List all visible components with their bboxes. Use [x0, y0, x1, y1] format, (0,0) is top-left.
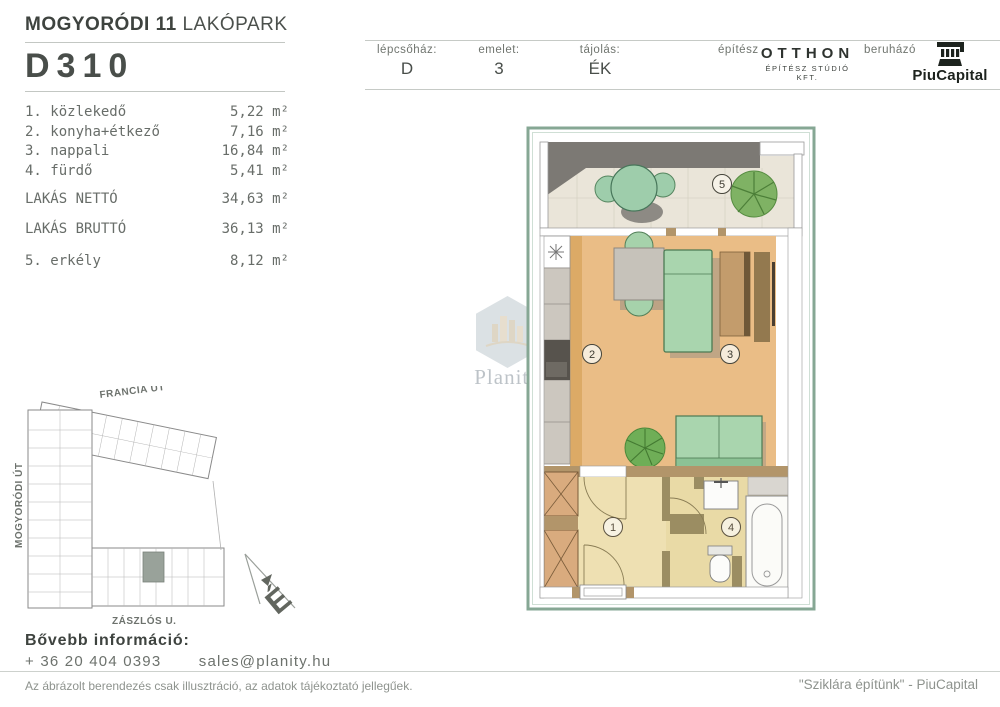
- net-area: 34,63 m²: [222, 190, 289, 210]
- svg-text:4: 4: [728, 522, 734, 534]
- room-label-3: 3: [721, 345, 740, 364]
- hall-bath-area: 1 4: [544, 472, 788, 594]
- wardrobe-icon: [720, 252, 775, 342]
- room-row: 1. közlekedő 5,22 m²: [25, 103, 289, 123]
- siteplan-left-wing: [28, 410, 92, 608]
- floor-cell: emelet: 3: [459, 44, 539, 79]
- balcony-railing: [760, 142, 804, 155]
- gross-area: 36,13 m²: [222, 220, 289, 240]
- room-label-2: 2: [583, 345, 602, 364]
- living-kitchen-area: 2 3: [542, 232, 776, 470]
- contact-email: sales@planity.hu: [199, 653, 332, 670]
- divider: [25, 91, 285, 92]
- bath-shelf: [748, 477, 788, 495]
- floorplan-drawing: 5: [526, 126, 816, 611]
- project-title-light: LAKÓPARK: [182, 14, 287, 35]
- orientation-cell: tájolás: ÉK: [560, 44, 640, 79]
- entry-door: [580, 585, 626, 599]
- svg-text:1: 1: [610, 522, 616, 534]
- piucapital-column-icon: [933, 41, 967, 67]
- footer-divider: [0, 671, 1000, 672]
- siteplan-bottom-wing: [92, 548, 224, 606]
- bed-icon: [664, 250, 720, 358]
- orientation-value: ÉK: [560, 59, 640, 79]
- north-letter: É: [258, 580, 297, 620]
- balcony-row: 5. erkély 8,12 m²: [25, 252, 289, 272]
- architect-subtitle: ÉPÍTÉSZ STÚDIÓ KFT.: [755, 64, 860, 82]
- siteplan-drawing: FRANCIA ÚT MOGYORÓDI ÚT ZÁSZLÓS U.: [12, 386, 240, 628]
- staircase-value: D: [367, 59, 447, 79]
- street-bottom-label: ZÁSZLÓS U.: [112, 614, 176, 627]
- shaft-icon: [544, 472, 578, 588]
- washbasin-icon: [704, 478, 738, 509]
- footer-disclaimer: Az ábrázolt berendezés csak illusztráció…: [25, 679, 413, 693]
- sofa-icon: [676, 416, 766, 470]
- architect-name: OTTHON: [755, 45, 860, 62]
- svg-text:3: 3: [727, 349, 733, 361]
- gross-area-row: LAKÁS BRUTTÓ 36,13 m²: [25, 220, 289, 240]
- contact-row: + 36 20 404 0393 sales@planity.hu: [25, 653, 331, 670]
- net-label: LAKÁS NETTÓ: [25, 190, 118, 210]
- room-label-5: 5: [713, 175, 732, 194]
- floor-value: 3: [459, 59, 539, 79]
- svg-text:2: 2: [589, 349, 595, 361]
- kitchen-counter-icon: [542, 236, 570, 464]
- room-area: 16,84 m²: [222, 142, 289, 162]
- staircase-label: lépcsőház:: [367, 44, 447, 56]
- street-left-label: MOGYORÓDI ÚT: [12, 463, 25, 548]
- highlighted-unit: [143, 552, 164, 582]
- room-row: 3. nappali 16,84 m²: [25, 142, 289, 162]
- floor-label: emelet:: [459, 44, 539, 56]
- datasheet-page: MOGYORÓDI 11 LAKÓPARK D310 lépcsőház: D …: [0, 0, 1000, 707]
- room-area-list: 1. közlekedő 5,22 m² 2. konyha+étkező 7,…: [25, 103, 289, 272]
- room-area: 5,22 m²: [230, 103, 289, 123]
- room-area: 5,41 m²: [230, 162, 289, 182]
- project-title: MOGYORÓDI 11 LAKÓPARK: [25, 14, 288, 36]
- developer-name: PiuCapital: [905, 67, 995, 84]
- room-row: 2. konyha+étkező 7,16 m²: [25, 123, 289, 143]
- street-top-label: FRANCIA ÚT: [99, 386, 166, 401]
- contact-heading: Bővebb információ:: [25, 632, 190, 650]
- svg-text:5: 5: [719, 179, 725, 191]
- bathtub-icon: [746, 496, 788, 594]
- room-label-1: 1: [604, 518, 623, 537]
- room-row: 4. fürdő 5,41 m²: [25, 162, 289, 182]
- room-label-4: 4: [722, 518, 741, 537]
- net-area-row: LAKÁS NETTÓ 34,63 m²: [25, 190, 289, 210]
- orientation-label: tájolás:: [560, 44, 640, 56]
- gross-label: LAKÁS BRUTTÓ: [25, 220, 126, 240]
- contact-phone: + 36 20 404 0393: [25, 653, 161, 670]
- balcony-area: 8,12 m²: [230, 252, 289, 272]
- divider: [25, 42, 285, 43]
- toilet-icon: [708, 546, 732, 582]
- footer-slogan: "Sziklára építünk" - PiuCapital: [799, 677, 978, 692]
- floor-plant-icon: [625, 428, 665, 468]
- balcony-shadow-band: [540, 142, 760, 168]
- balcony-plant-icon: [731, 171, 777, 217]
- architect-logo: OTTHON ÉPÍTÉSZ STÚDIÓ KFT.: [755, 45, 860, 82]
- architect-label: építész: [718, 44, 759, 56]
- unit-id: D310: [25, 47, 134, 86]
- project-title-bold: MOGYORÓDI 11: [25, 14, 177, 35]
- staircase-cell: lépcsőház: D: [367, 44, 447, 79]
- balcony-area: 5: [540, 142, 804, 228]
- north-compass-icon: É: [233, 546, 307, 620]
- room-area: 7,16 m²: [230, 123, 289, 143]
- developer-logo: PiuCapital: [905, 41, 995, 84]
